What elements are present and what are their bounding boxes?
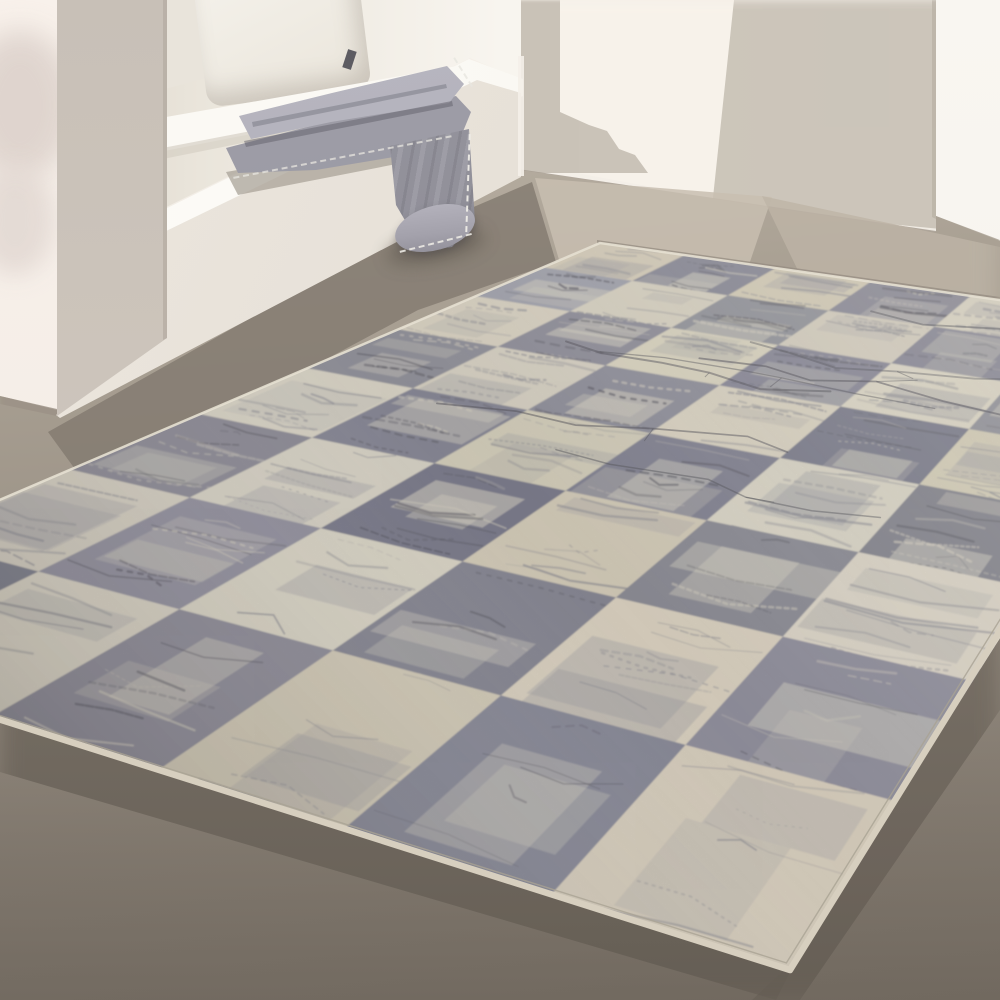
room-photo xyxy=(0,0,1000,1000)
